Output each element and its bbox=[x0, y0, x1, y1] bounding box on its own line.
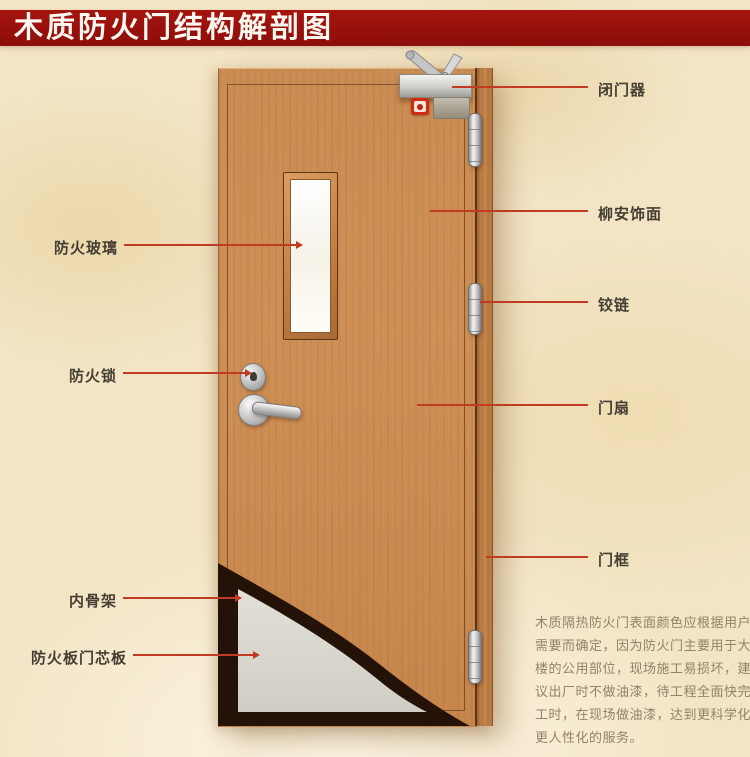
line-door-frame bbox=[486, 556, 588, 558]
line-inner-skeleton bbox=[123, 597, 235, 599]
alarm-indicator bbox=[411, 98, 429, 115]
line-fire-lock bbox=[123, 372, 245, 374]
line-door-leaf bbox=[417, 404, 588, 406]
fire-lock-cylinder bbox=[240, 363, 266, 391]
door-frame bbox=[477, 68, 493, 726]
label-door-closer: 闭门器 bbox=[598, 79, 646, 100]
label-veneer: 柳安饰面 bbox=[598, 203, 662, 224]
fire-glass-frame bbox=[283, 172, 338, 340]
page-title: 木质防火门结构解剖图 bbox=[0, 10, 750, 47]
label-door-frame: 门框 bbox=[598, 549, 630, 570]
hinge-bottom bbox=[468, 630, 482, 684]
label-plate bbox=[433, 97, 470, 119]
line-veneer bbox=[430, 210, 588, 212]
fire-glass-pane bbox=[290, 179, 331, 333]
hinge-middle bbox=[468, 283, 482, 335]
line-hinge bbox=[480, 301, 588, 303]
cutaway-section bbox=[218, 545, 476, 726]
title-banner: 木质防火门结构解剖图 bbox=[0, 10, 750, 46]
line-core-board bbox=[133, 654, 253, 656]
label-fire-lock: 防火锁 bbox=[17, 365, 117, 386]
hinge-top bbox=[468, 113, 482, 167]
label-door-leaf: 门扇 bbox=[598, 397, 630, 418]
fire-door-illustration bbox=[218, 68, 492, 726]
label-hinge: 铰链 bbox=[598, 294, 630, 315]
infographic-canvas: 木质防火门结构解剖图 bbox=[0, 0, 750, 757]
line-door-closer bbox=[452, 86, 588, 88]
label-fire-glass: 防火玻璃 bbox=[18, 237, 118, 258]
label-inner-skeleton: 内骨架 bbox=[17, 590, 117, 611]
product-description: 木质隔热防火门表面颜色应根据用户需要而确定，因为防火门主要用于大楼的公用部位，现… bbox=[535, 611, 750, 749]
line-fire-glass bbox=[124, 244, 296, 246]
label-core-board: 防火板门芯板 bbox=[7, 647, 127, 668]
